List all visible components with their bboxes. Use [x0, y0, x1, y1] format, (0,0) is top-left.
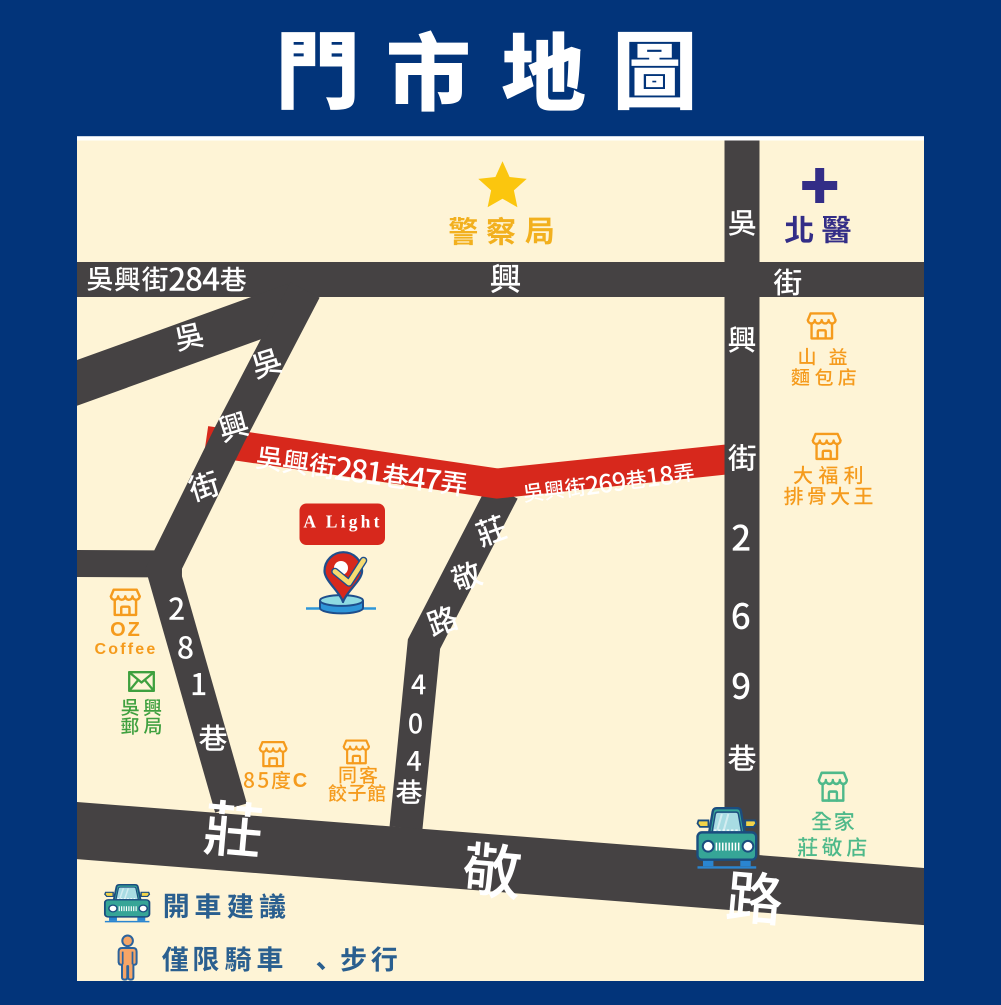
svg-text:C: C [293, 770, 307, 792]
svg-text:OZ: OZ [110, 619, 142, 641]
svg-text:Coffee: Coffee [95, 641, 158, 658]
svg-text:A Light: A Light [303, 512, 382, 532]
